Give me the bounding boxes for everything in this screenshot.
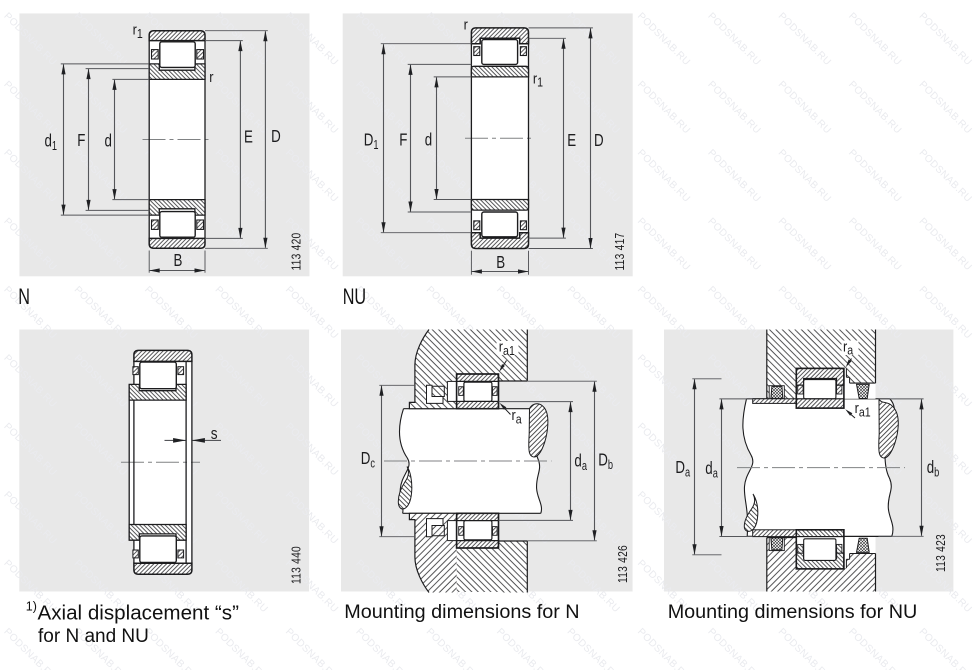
- svg-text:Axial displacement “s”: Axial displacement “s”: [38, 601, 240, 624]
- svg-text:F: F: [77, 131, 85, 150]
- svg-text:B: B: [496, 253, 505, 272]
- svg-text:B: B: [174, 251, 183, 270]
- svg-text:r: r: [464, 16, 469, 33]
- svg-text:E: E: [567, 131, 576, 150]
- svg-text:113 440: 113 440: [290, 546, 303, 584]
- svg-text:D: D: [594, 131, 604, 150]
- svg-text:NU: NU: [343, 284, 366, 309]
- svg-text:s: s: [211, 425, 218, 444]
- svg-text:F: F: [399, 131, 407, 150]
- svg-text:Mounting dimensions for N: Mounting dimensions for N: [344, 601, 579, 623]
- svg-text:r: r: [209, 68, 214, 85]
- svg-text:113 420: 113 420: [290, 233, 303, 271]
- svg-text:Mounting dimensions for NU: Mounting dimensions for NU: [668, 601, 918, 623]
- svg-text:E: E: [244, 128, 253, 147]
- svg-text:1): 1): [26, 599, 37, 613]
- svg-text:for N and NU: for N and NU: [38, 626, 149, 647]
- svg-text:d: d: [105, 132, 112, 151]
- svg-text:D: D: [271, 127, 281, 146]
- svg-text:113 423: 113 423: [935, 534, 948, 572]
- svg-text:N: N: [18, 284, 30, 309]
- svg-text:113 417: 113 417: [614, 233, 627, 271]
- svg-text:113 426: 113 426: [617, 545, 630, 583]
- svg-text:d: d: [425, 131, 432, 150]
